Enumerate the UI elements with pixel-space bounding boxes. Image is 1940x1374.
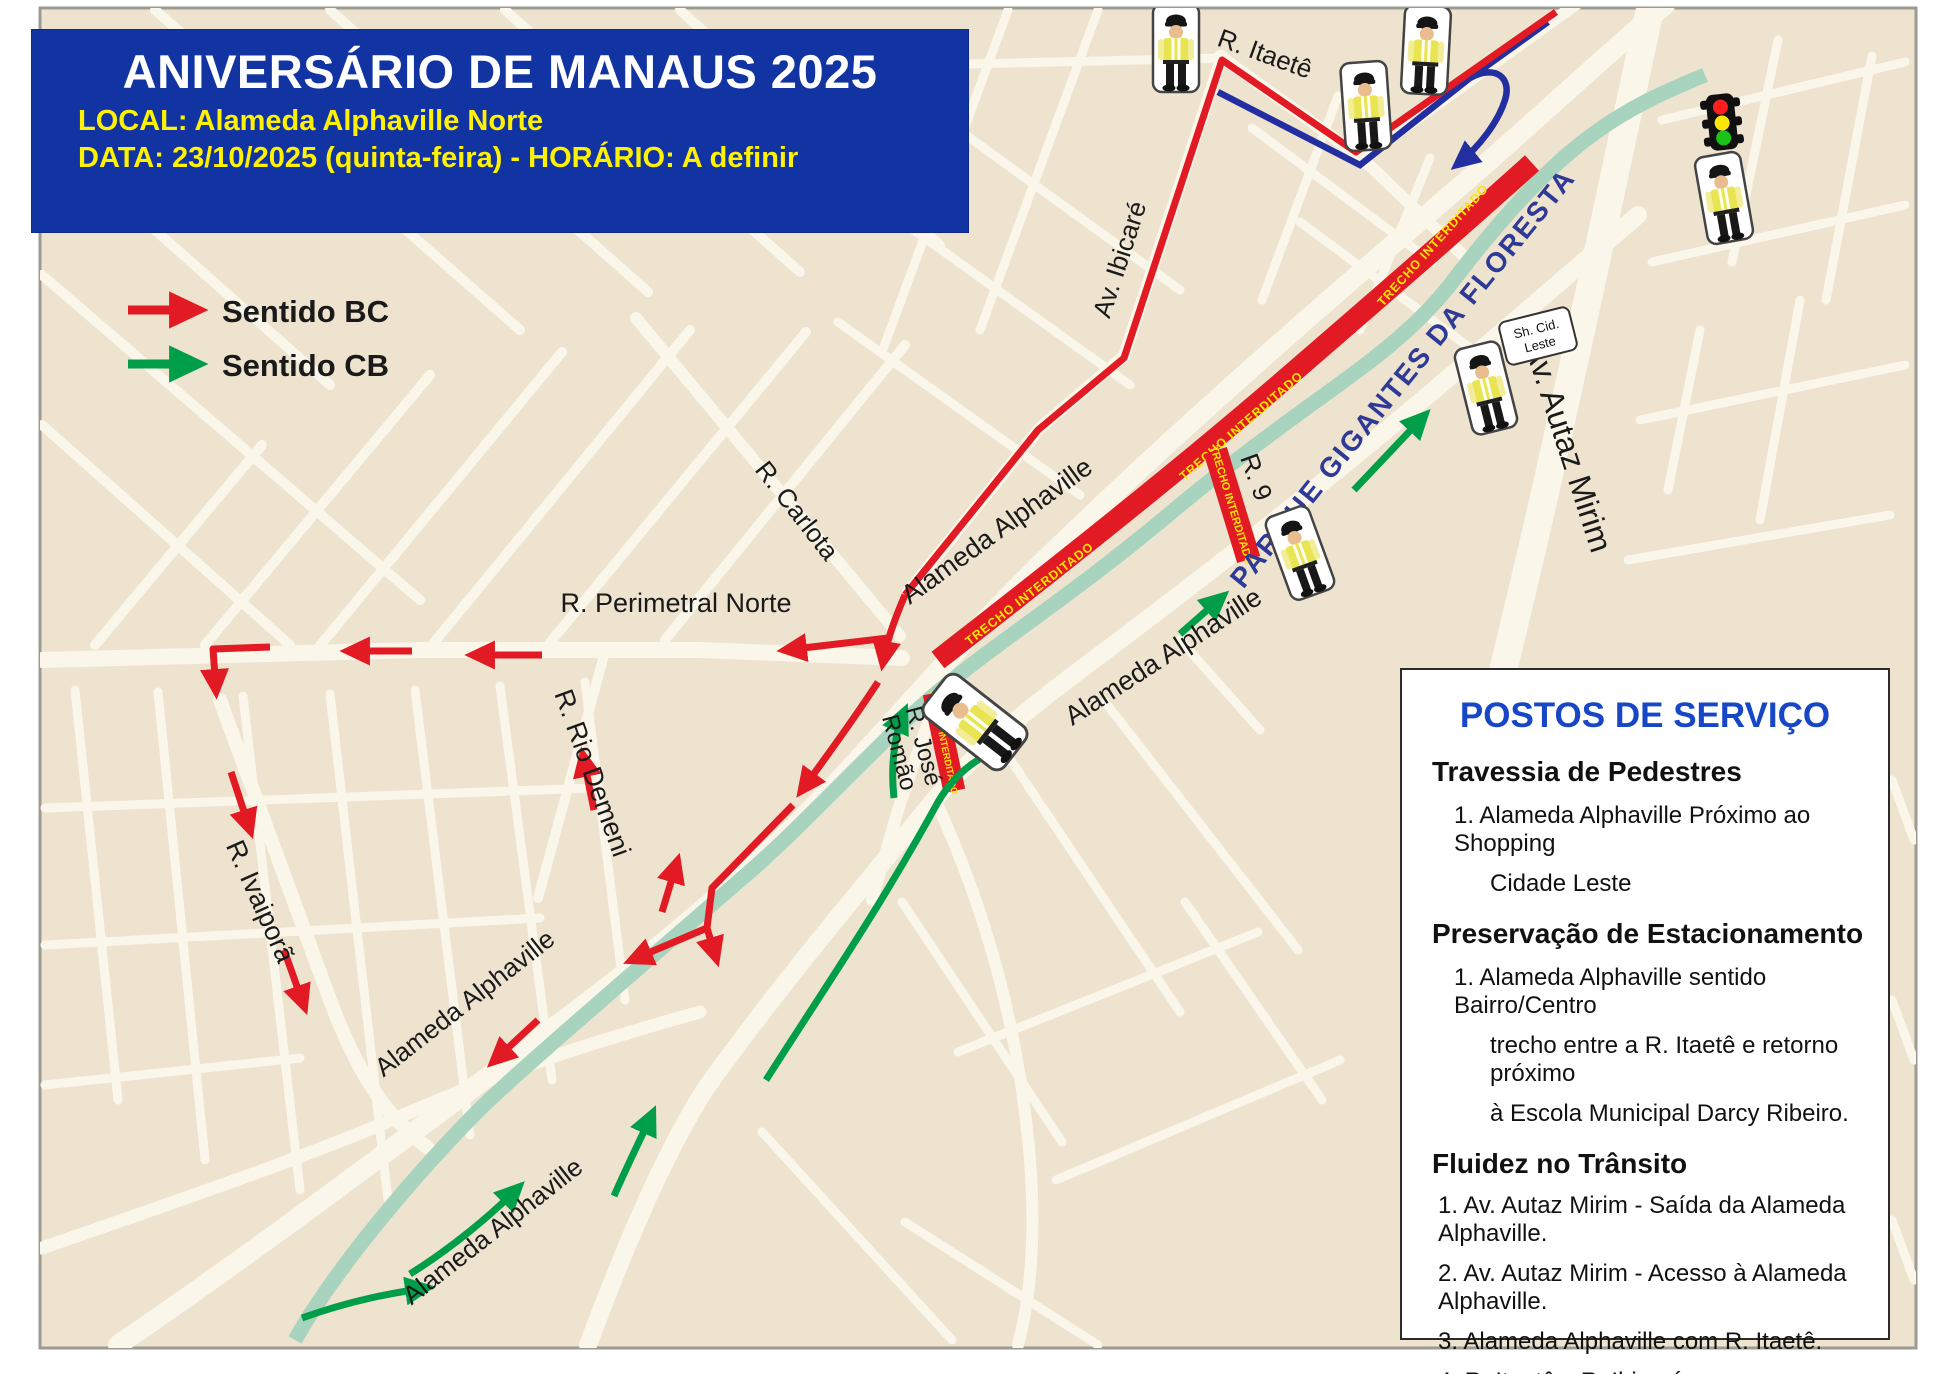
panel-title: POSTOS DE SERVIÇO	[1402, 696, 1888, 736]
legend-cb-label: Sentido CB	[222, 348, 389, 383]
event-title: ANIVERSÁRIO DE MANAUS 2025	[40, 44, 960, 99]
traffic-officer-icon	[1401, 5, 1452, 95]
panel-item: 1. Alameda Alphaville Próximo ao Shoppin…	[1454, 802, 1888, 858]
legend-bc-label: Sentido BC	[222, 294, 389, 329]
traffic-operation-map-page: TRECHO INTERDITADO TRECHO INTERDITADO TR…	[0, 0, 1940, 1374]
traffic-light-icon	[1699, 92, 1745, 152]
panel-item: 3. Alameda Alphaville com R. Itaetê.	[1438, 1328, 1888, 1356]
service-posts-panel: POSTOS DE SERVIÇO Travessia de Pedestres…	[1400, 668, 1890, 1340]
section-heading-preservacao: Preservação de Estacionamento	[1432, 918, 1888, 950]
event-header: ANIVERSÁRIO DE MANAUS 2025 LOCAL: Alamed…	[32, 30, 968, 232]
panel-item-cont: à Escola Municipal Darcy Ribeiro.	[1490, 1100, 1888, 1128]
label-perimetral-norte: R. Perimetral Norte	[560, 588, 791, 618]
panel-item-cont: trecho entre a R. Itaetê e retorno próxi…	[1490, 1032, 1888, 1088]
panel-item: 2. Av. Autaz Mirim - Acesso à Alameda Al…	[1438, 1260, 1888, 1316]
traffic-officer-icon	[1153, 4, 1199, 92]
traffic-officer-icon	[1340, 61, 1392, 152]
panel-item-cont: Cidade Leste	[1490, 870, 1888, 898]
panel-item: 1. Alameda Alphaville sentido Bairro/Cen…	[1454, 964, 1888, 1020]
section-heading-travessia: Travessia de Pedestres	[1432, 756, 1888, 788]
event-local: LOCAL: Alameda Alphaville Norte	[78, 105, 968, 138]
event-date: DATA: 23/10/2025 (quinta-feira) - HORÁRI…	[78, 142, 968, 175]
section-heading-fluidez: Fluidez no Trânsito	[1432, 1148, 1888, 1180]
panel-item: 1. Av. Autaz Mirim - Saída da Alameda Al…	[1438, 1192, 1888, 1248]
panel-item: 4. R. Itaetê x R. Ibicaré.	[1438, 1368, 1888, 1374]
